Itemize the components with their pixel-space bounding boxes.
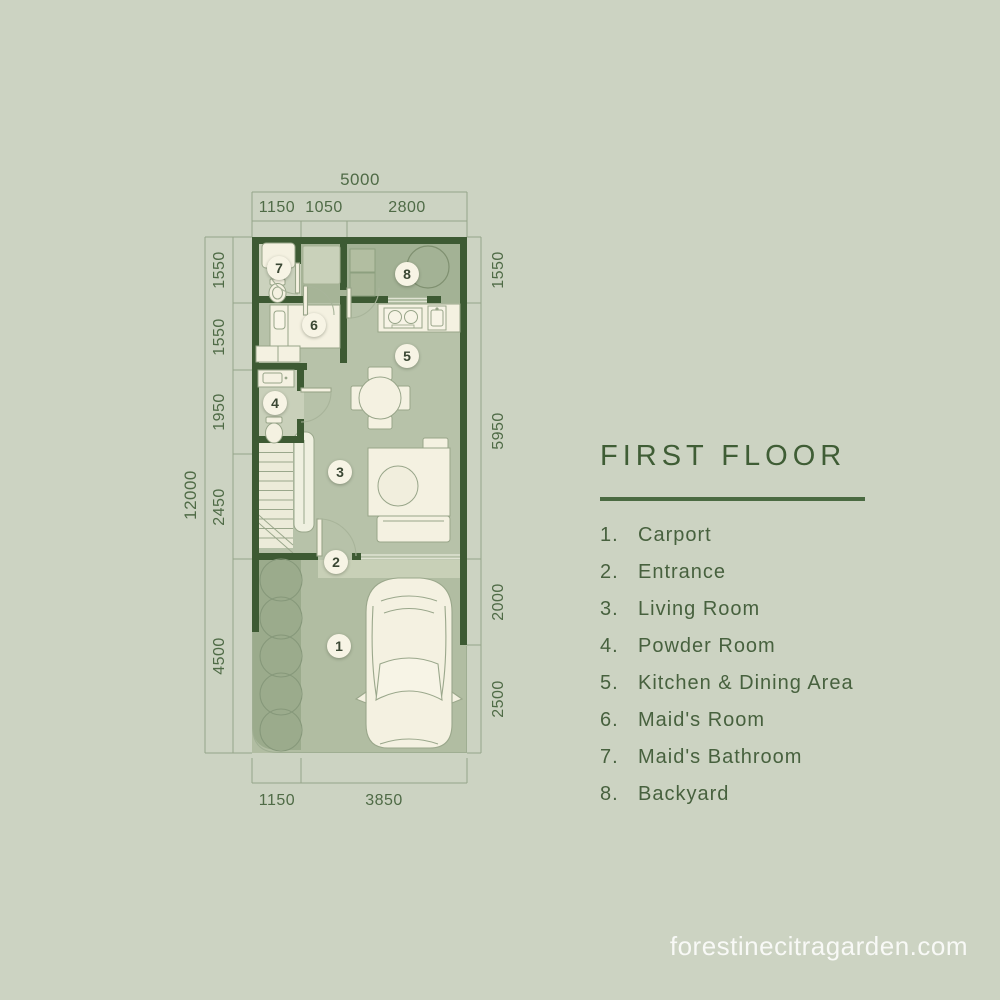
legend-item-number: 5.: [600, 672, 638, 695]
dim-left-total: 12000: [181, 470, 201, 520]
dim-left-seg: 1550: [211, 251, 229, 289]
dim-right-seg: 2500: [490, 680, 508, 718]
legend-item-number: 1.: [600, 524, 638, 547]
legend-item-label: Kitchen & Dining Area: [638, 672, 940, 695]
dim-right-seg: 5950: [490, 412, 508, 450]
dining-table: [359, 377, 401, 419]
dim-left-seg: 2450: [211, 488, 229, 526]
legend-item-number: 3.: [600, 598, 638, 621]
room-marker-backyard: 8: [395, 262, 419, 286]
sofa-set: [368, 438, 450, 542]
legend-item: 5. Kitchen & Dining Area: [600, 665, 940, 702]
dim-bottom-seg: 3850: [365, 792, 403, 810]
laundry-counter: [303, 246, 340, 284]
legend-item-number: 7.: [600, 746, 638, 769]
pillow: [274, 311, 285, 329]
legend-list: 1. Carport 2. Entrance 3. Living Room 4.…: [600, 517, 940, 813]
dim-top-seg: 1050: [305, 199, 343, 217]
legend-item: 8. Backyard: [600, 776, 940, 813]
legend-item: 3. Living Room: [600, 591, 940, 628]
legend-item-number: 2.: [600, 561, 638, 584]
title-underline: [600, 497, 865, 501]
room-marker-kitchen-dining: 5: [395, 344, 419, 368]
room-marker-maids-room: 6: [302, 313, 326, 337]
legend-item-number: 6.: [600, 709, 638, 732]
kitchen-counter: [378, 304, 460, 332]
dim-top-seg: 1150: [259, 199, 295, 217]
legend-item: 6. Maid's Room: [600, 702, 940, 739]
legend-item-label: Powder Room: [638, 635, 940, 658]
legend-item: 2. Entrance: [600, 554, 940, 591]
room-marker-carport: 1: [327, 634, 351, 658]
dim-left-seg: 1550: [211, 318, 229, 356]
room-marker-living-room: 3: [328, 460, 352, 484]
dim-left-seg: 4500: [211, 637, 229, 675]
dim-top-total: 5000: [340, 170, 380, 190]
legend-item: 4. Powder Room: [600, 628, 940, 665]
watermark-text: forestinecitragarden.com: [670, 931, 968, 962]
legend-item-label: Maid's Room: [638, 709, 940, 732]
car-icon: [356, 578, 462, 748]
room-marker-maids-bathroom: 7: [267, 256, 291, 280]
legend-item-label: Entrance: [638, 561, 940, 584]
legend-item-label: Carport: [638, 524, 940, 547]
legend-item-label: Backyard: [638, 783, 940, 806]
legend-item-number: 8.: [600, 783, 638, 806]
floor-plan-page: 5000 1150 1050 2800 12000 1550 1550 1950…: [0, 0, 1000, 1000]
room-marker-powder-room: 4: [263, 391, 287, 415]
legend-item: 7. Maid's Bathroom: [600, 739, 940, 776]
dim-left-seg: 1950: [211, 393, 229, 431]
page-title: FIRST FLOOR: [600, 440, 940, 473]
legend-item: 1. Carport: [600, 517, 940, 554]
dim-right-seg: 1550: [490, 251, 508, 289]
legend-panel: FIRST FLOOR 1. Carport 2. Entrance 3. Li…: [600, 440, 940, 813]
dim-right-seg: 2000: [490, 583, 508, 621]
legend-item-number: 4.: [600, 635, 638, 658]
legend-item-label: Maid's Bathroom: [638, 746, 940, 769]
legend-item-label: Living Room: [638, 598, 940, 621]
room-marker-entrance: 2: [324, 550, 348, 574]
dim-top-seg: 2800: [388, 199, 426, 217]
dim-bottom-seg: 1150: [259, 792, 295, 810]
